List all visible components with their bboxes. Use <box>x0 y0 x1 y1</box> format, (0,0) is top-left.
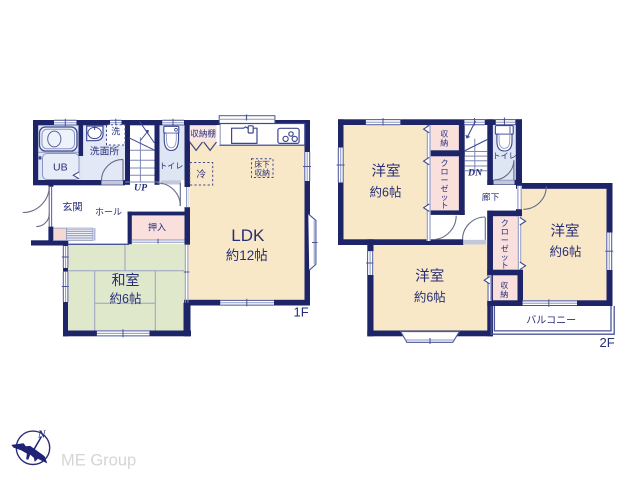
svg-text:UB: UB <box>53 162 68 174</box>
svg-text:約6帖: 約6帖 <box>370 185 402 200</box>
svg-text:洋室: 洋室 <box>415 268 444 285</box>
svg-text:ゼ: ゼ <box>501 244 509 254</box>
svg-text:洋室: 洋室 <box>551 223 580 240</box>
svg-text:洋室: 洋室 <box>372 163 401 180</box>
svg-text:収: 収 <box>500 280 508 290</box>
svg-text:約12帖: 約12帖 <box>226 248 268 263</box>
svg-text:ト: ト <box>501 261 509 270</box>
svg-text:約6帖: 約6帖 <box>550 244 582 259</box>
svg-text:ホール: ホール <box>95 207 122 217</box>
svg-text:和室: 和室 <box>112 272 140 288</box>
svg-text:LDK: LDK <box>231 226 265 245</box>
svg-text:トイレ: トイレ <box>159 161 183 170</box>
svg-text:収納: 収納 <box>254 168 270 178</box>
svg-text:ME Group: ME Group <box>61 452 136 470</box>
svg-text:バルコニー: バルコニー <box>526 315 576 327</box>
svg-text:洗: 洗 <box>111 126 120 137</box>
svg-text:納: 納 <box>440 138 448 148</box>
svg-text:押入: 押入 <box>148 222 166 233</box>
svg-text:床下: 床下 <box>254 159 270 169</box>
svg-text:DN: DN <box>467 168 483 179</box>
svg-text:約6帖: 約6帖 <box>110 291 142 306</box>
svg-text:2F: 2F <box>600 335 615 350</box>
svg-text:ト: ト <box>441 201 449 210</box>
svg-text:1F: 1F <box>294 305 309 320</box>
svg-text:トイレ: トイレ <box>493 151 517 160</box>
svg-text:収納棚: 収納棚 <box>190 129 216 139</box>
svg-text:洗面所: 洗面所 <box>90 146 120 158</box>
svg-text:廊下: 廊下 <box>482 191 500 202</box>
svg-text:納: 納 <box>500 289 508 299</box>
svg-text:冷: 冷 <box>196 169 206 181</box>
svg-text:N: N <box>37 430 46 441</box>
svg-text:収: 収 <box>440 129 448 139</box>
svg-text:UP: UP <box>134 183 148 194</box>
svg-text:ゼ: ゼ <box>441 184 449 194</box>
svg-text:約6帖: 約6帖 <box>414 290 446 305</box>
svg-text:玄関: 玄関 <box>62 201 82 214</box>
